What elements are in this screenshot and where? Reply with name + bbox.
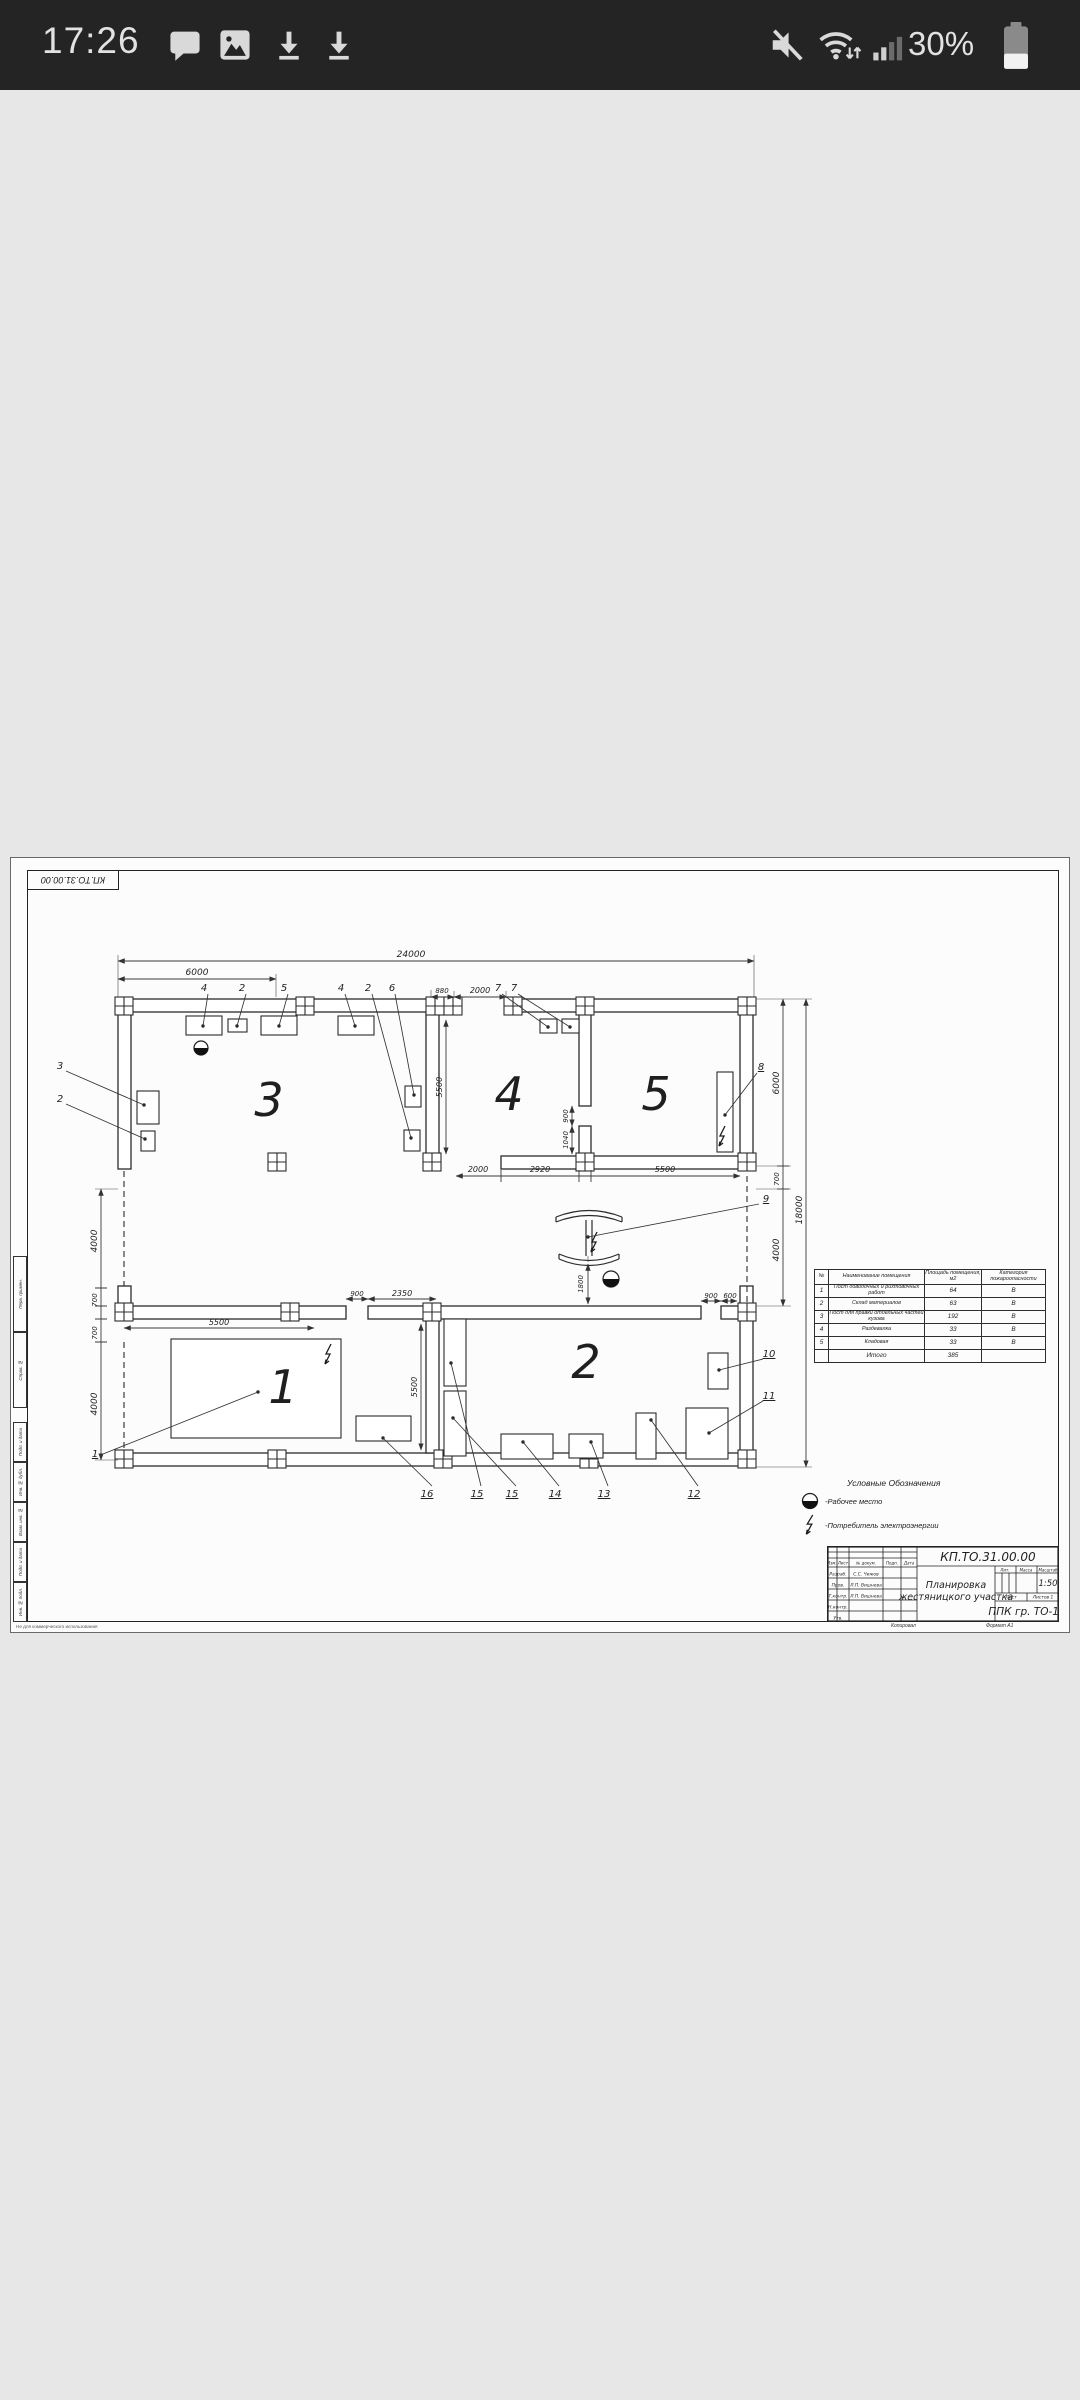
table-total-row: Итого 385 — [815, 1350, 1046, 1363]
cell-name: Пост доводочных и рихтовочных работ — [829, 1285, 925, 1298]
dim-label: 2000 — [470, 986, 490, 995]
drawing-page[interactable]: КП.ТО.31.00.00 Перв. примен. Справ. № По… — [10, 857, 1070, 1633]
title-block-grid: КП.ТО.31.00.00 Изм. Лист № докум. Подп. … — [827, 1546, 1059, 1622]
legend-label: -Рабочее место — [825, 1497, 882, 1506]
cell-cat: В — [982, 1337, 1046, 1350]
legend-item-worker: -Рабочее место — [801, 1492, 1041, 1510]
tb-scale-label: Масштаб — [1038, 1567, 1058, 1572]
callout-label: 4 — [201, 983, 207, 994]
tb-role: Н.контр. — [828, 1605, 848, 1611]
dim-label: 2000 — [468, 1165, 488, 1174]
cell-cat: В — [982, 1298, 1046, 1311]
legend-title: Условные Обозначения — [847, 1478, 1041, 1488]
gallery-icon — [218, 28, 252, 62]
copied-label: Копировал — [891, 1623, 916, 1629]
cell-area: 33 — [925, 1324, 982, 1337]
rooms-table: № Наименование помещения Площадь помещен… — [814, 1269, 1046, 1363]
callout-label: 8 — [758, 1062, 764, 1073]
dim-label: 1800 — [577, 1275, 585, 1293]
dim-label: 24000 — [397, 950, 426, 960]
room-label: 2 — [571, 1335, 600, 1389]
callout-label: 14 — [549, 1489, 562, 1500]
cell-num: 1 — [815, 1285, 829, 1298]
cell-name: Склад материалов — [829, 1298, 925, 1311]
drawing-title-line1: Планировка — [926, 1580, 987, 1591]
chat-icon — [168, 28, 202, 62]
cell-num: 3 — [815, 1311, 829, 1324]
phone-screen: 17:26 — [0, 0, 1080, 2400]
callout-label: 15 — [506, 1489, 519, 1500]
col-header: Наименование помещения — [829, 1270, 925, 1285]
cell-name: Пост для правки отдельных частей кузова — [829, 1311, 925, 1324]
room-label: 3 — [254, 1073, 283, 1127]
drawing-title-line2: жестяницкого участка — [898, 1592, 1014, 1603]
cell-num: 5 — [815, 1337, 829, 1350]
callout-label: 4 — [338, 983, 344, 994]
dim-label: 700 — [91, 1326, 99, 1340]
download-icon — [272, 28, 306, 62]
col-header: Площадь помещения, м2 — [925, 1270, 982, 1285]
tb-role: Пров. — [832, 1583, 845, 1589]
cell-name: Раздевалка — [829, 1324, 925, 1337]
cell-cat: В — [982, 1311, 1046, 1324]
dim-label: 5500 — [410, 1377, 419, 1397]
tb-col: Лист — [837, 1561, 849, 1566]
callout-label: 2 — [365, 983, 371, 994]
legend: Условные Обозначения -Рабочее место -Пот… — [801, 1478, 1041, 1536]
dim-label: 900 — [562, 1109, 570, 1123]
dim-label: 6000 — [772, 1071, 782, 1094]
callout-label: 3 — [57, 1061, 63, 1072]
callout-label: 11 — [763, 1391, 776, 1402]
dim-label: 1040 — [562, 1131, 570, 1149]
tb-name: С.С. Чижов — [853, 1572, 879, 1578]
legend-item-consumer: -Потребитель электроэнергии — [801, 1514, 1041, 1536]
dim-label: 5500 — [435, 1077, 444, 1097]
table-row: 1 Пост доводочных и рихтовочных работ 64… — [815, 1285, 1046, 1298]
tb-mass: Масса — [1020, 1567, 1033, 1572]
tb-role: Т.контр. — [828, 1594, 847, 1600]
table-row: 3 Пост для правки отдельных частей кузов… — [815, 1311, 1046, 1324]
tb-sheet: Лист — [1004, 1595, 1017, 1601]
col-header: Категория пожароопасности — [982, 1270, 1046, 1285]
callout-label: 6 — [389, 983, 395, 994]
cell-name: Кладовая — [829, 1337, 925, 1350]
dim-label: 4000 — [90, 1392, 100, 1415]
worker-place-icon — [801, 1492, 819, 1510]
tb-name: Л.П. Вишнева — [849, 1583, 882, 1589]
cell-area: 64 — [925, 1285, 982, 1298]
mute-icon — [768, 26, 806, 64]
callout-label: 2 — [57, 1094, 63, 1105]
tb-col: Изм. — [827, 1561, 836, 1566]
tb-col: № докум. — [855, 1561, 876, 1566]
tb-col: Дата — [903, 1561, 915, 1566]
wifi-icon — [816, 26, 862, 66]
title-block: КП.ТО.31.00.00 Изм. Лист № докум. Подп. … — [827, 1546, 1059, 1622]
format-label: Формат А1 — [986, 1623, 1013, 1629]
cell-area: 63 — [925, 1298, 982, 1311]
table-row: 5 Кладовая 33 В — [815, 1337, 1046, 1350]
table-row: 4 Раздевалка 33 В — [815, 1324, 1046, 1337]
callout-label: 7 — [511, 983, 518, 994]
col-header: № — [815, 1270, 829, 1285]
tb-name: Л.П. Вишнева — [849, 1594, 882, 1600]
dim-label: 4000 — [772, 1238, 782, 1261]
dim-label: 4000 — [90, 1229, 100, 1252]
callout-label: 10 — [763, 1349, 776, 1360]
total-label: Итого — [829, 1350, 925, 1363]
tb-lit: Лит. — [999, 1567, 1009, 1572]
tb-org: ППК гр. ТО-18 — [988, 1606, 1059, 1618]
cell-num: 4 — [815, 1324, 829, 1337]
legend-label: -Потребитель электроэнергии — [825, 1521, 939, 1530]
callout-label: 15 — [471, 1489, 484, 1500]
callout-label: 5 — [281, 983, 287, 994]
room-label: 4 — [494, 1067, 523, 1121]
dim-label: 5500 — [655, 1165, 675, 1174]
cell-empty — [815, 1350, 829, 1363]
callout-label: 1 — [92, 1449, 98, 1460]
table-row: 2 Склад материалов 63 В — [815, 1298, 1046, 1311]
cell-num: 2 — [815, 1298, 829, 1311]
dim-label: 880 — [435, 987, 449, 995]
tb-role: Утв. — [833, 1616, 842, 1622]
dim-label: 6000 — [186, 968, 209, 978]
tb-role: Разраб. — [829, 1572, 846, 1578]
battery-icon — [1000, 22, 1032, 70]
callout-labels: 4 2 5 4 2 6 7 7 3 2 8 9 10 11 1 16 15 15… — [57, 983, 776, 1500]
tb-sheets: Листов 1 — [1032, 1595, 1054, 1601]
dim-label: 5500 — [209, 1318, 229, 1327]
dim-label: 600 — [723, 1292, 737, 1300]
tb-scale-value: 1:50 — [1038, 1579, 1057, 1589]
cell-area: 192 — [925, 1311, 982, 1324]
dim-label: 700 — [91, 1293, 99, 1307]
dim-label: 900 — [350, 1290, 364, 1298]
download-icon — [322, 28, 356, 62]
tb-col: Подп. — [886, 1561, 898, 1566]
watermark-text: Не для коммерческого использования — [16, 1624, 98, 1629]
signal-icon — [872, 30, 906, 62]
dim-label: 2920 — [530, 1165, 550, 1174]
doc-number: КП.ТО.31.00.00 — [940, 1550, 1036, 1564]
dim-label: 700 — [773, 1172, 781, 1186]
dim-label: 2350 — [392, 1289, 412, 1298]
room-label: 5 — [641, 1067, 670, 1121]
cell-cat: В — [982, 1285, 1046, 1298]
room-label: 1 — [268, 1360, 297, 1414]
dim-label: 18000 — [795, 1195, 805, 1224]
total-area: 385 — [925, 1350, 982, 1363]
callout-label: 13 — [598, 1489, 611, 1500]
callout-label: 12 — [688, 1489, 701, 1500]
cell-cat: В — [982, 1324, 1046, 1337]
battery-percent: 30% — [908, 25, 974, 63]
cell-area: 33 — [925, 1337, 982, 1350]
dim-label: 900 — [704, 1292, 718, 1300]
cell-empty — [982, 1350, 1046, 1363]
lightning-icon — [801, 1514, 819, 1536]
callout-label: 7 — [495, 983, 502, 994]
status-bar: 17:26 — [0, 0, 1080, 90]
callout-label: 9 — [763, 1194, 769, 1205]
callout-label: 16 — [421, 1489, 434, 1500]
callout-label: 2 — [239, 983, 245, 994]
clock: 17:26 — [42, 20, 140, 62]
